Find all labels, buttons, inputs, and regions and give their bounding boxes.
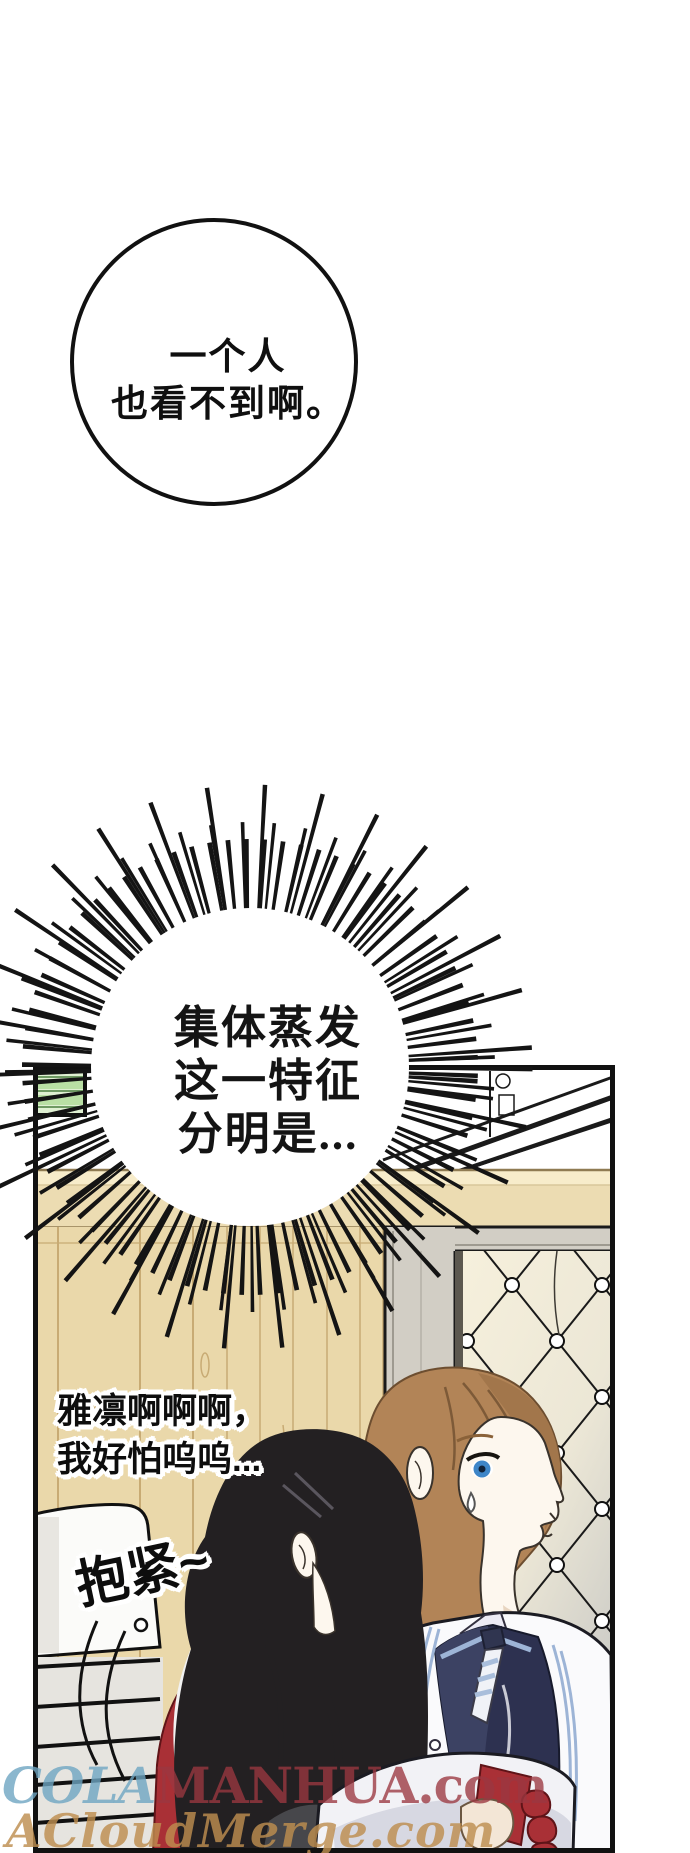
bubble-text-line: 这一特征	[174, 1055, 362, 1108]
speech-bubble-round-text: 一个人 也看不到啊。	[111, 333, 345, 427]
watermark-text: ACloudMerge.com	[6, 1804, 496, 1853]
dialogue-line: 雅凛啊啊啊，	[57, 1388, 267, 1436]
comic-page: 一个人 也看不到啊。	[0, 0, 690, 1853]
bubble-text-line: 也看不到啊。	[111, 380, 345, 427]
bubble-text-line: 一个人	[111, 333, 345, 380]
speech-bubble-round: 一个人 也看不到啊。	[70, 218, 358, 506]
scared-dialogue-text: 雅凛啊啊啊， 我好怕呜呜...	[57, 1388, 267, 1484]
bubble-text-line: 分明是...	[174, 1108, 362, 1161]
burst-bubble-text: 集体蒸发 这一特征 分明是...	[0, 777, 540, 1357]
watermark-acloudmerge: ACloudMerge.com	[6, 1804, 496, 1853]
bubble-text-line: 集体蒸发	[174, 1002, 362, 1055]
dialogue-line: 我好怕呜呜...	[57, 1436, 267, 1484]
speech-bubble-burst: 集体蒸发 这一特征 分明是...	[0, 777, 540, 1357]
